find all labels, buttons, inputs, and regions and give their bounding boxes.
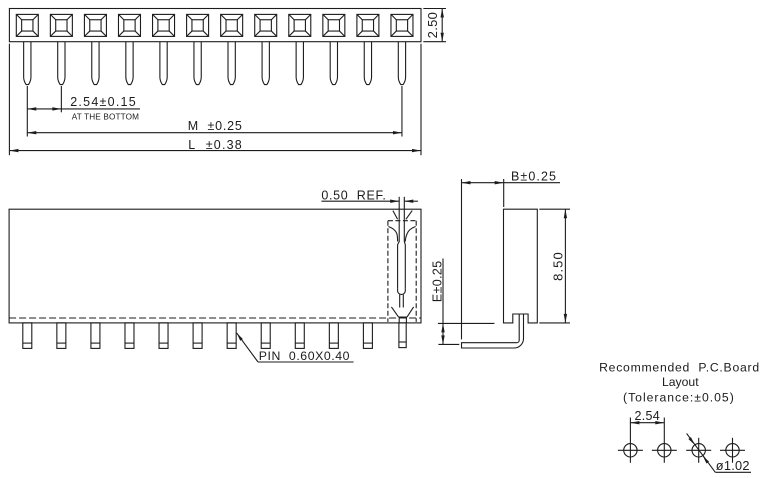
svg-text:L ±0.38: L ±0.38: [188, 138, 243, 152]
svg-text:(Tolerance:±0.05): (Tolerance:±0.05): [623, 391, 735, 405]
svg-text:2.50: 2.50: [425, 12, 440, 38]
svg-text:0.50 REF.: 0.50 REF.: [321, 188, 386, 202]
svg-text:Layout: Layout: [662, 375, 699, 389]
svg-text:B±0.25: B±0.25: [511, 169, 557, 183]
svg-text:PIN 0.60X0.40: PIN 0.60X0.40: [259, 349, 350, 363]
svg-text:Recommended P.C.Board: Recommended P.C.Board: [599, 360, 760, 374]
svg-text:2.54: 2.54: [635, 409, 661, 423]
svg-text:ø1.02: ø1.02: [716, 458, 750, 473]
svg-text:AT THE BOTTOM: AT THE BOTTOM: [72, 112, 139, 121]
svg-text:8.50: 8.50: [551, 251, 566, 281]
svg-text:M ±0.25: M ±0.25: [188, 119, 243, 133]
svg-text:E±0.25: E±0.25: [430, 260, 444, 302]
svg-text:2.54±0.15: 2.54±0.15: [70, 95, 137, 109]
